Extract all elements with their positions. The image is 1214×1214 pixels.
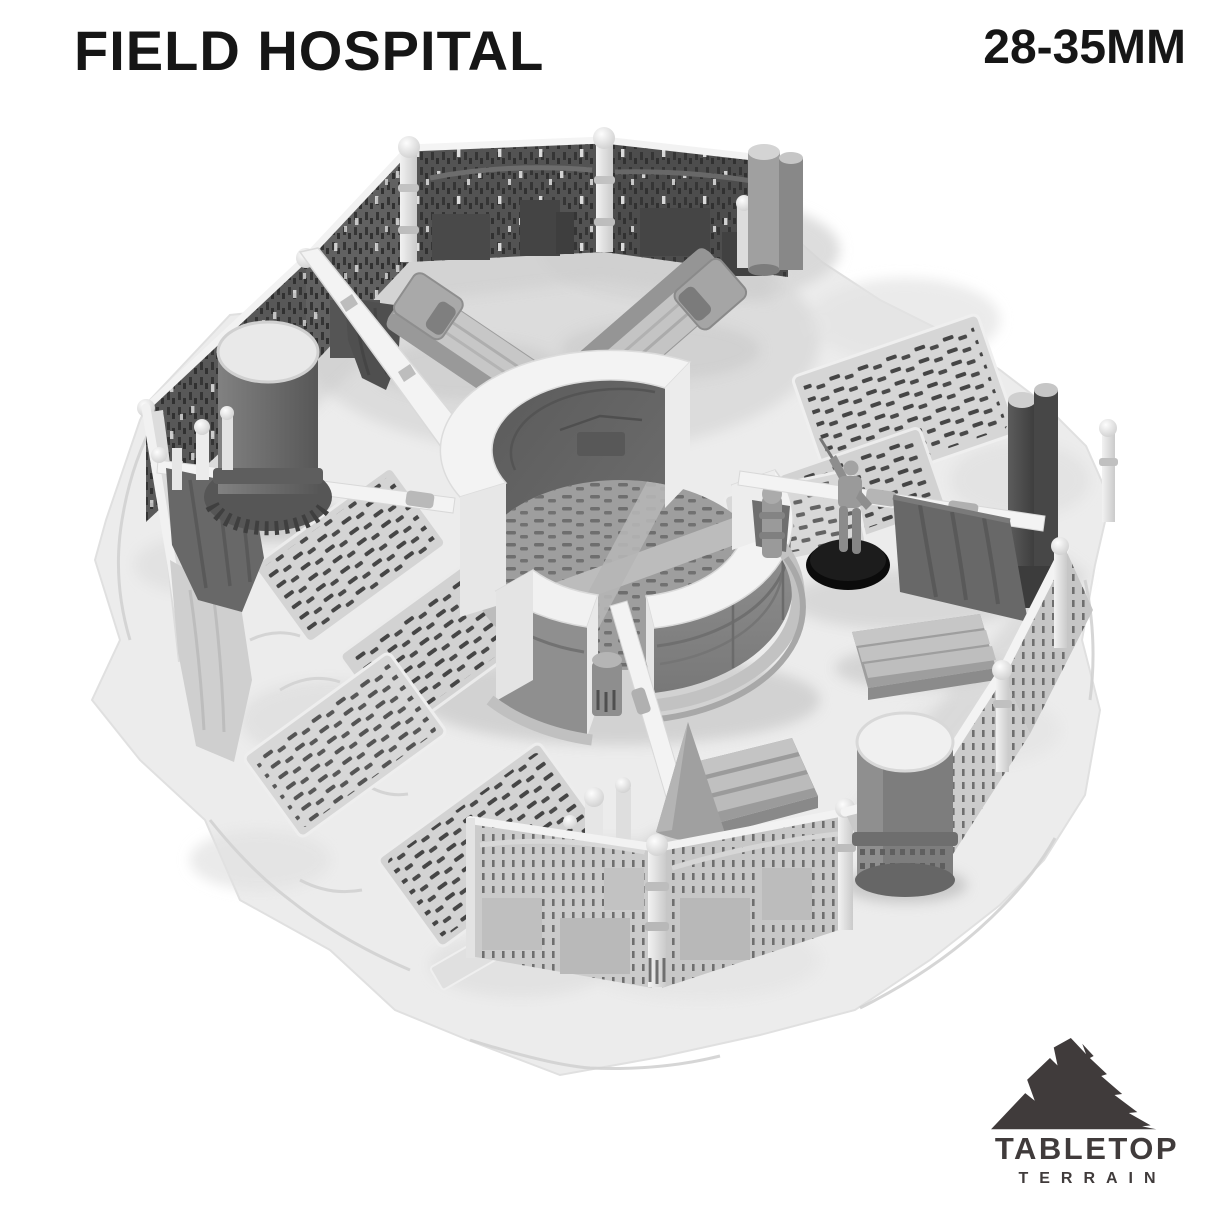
- wall-post: [593, 127, 615, 252]
- mountain-icon: [987, 1038, 1187, 1133]
- wall-segment: [409, 140, 604, 262]
- brand-subtitle: TERRAIN: [972, 1170, 1202, 1188]
- wall-post: [645, 834, 669, 987]
- wall-post: [398, 136, 420, 262]
- ribbed-foot: [592, 652, 622, 716]
- product-render: [0, 0, 1214, 1214]
- brand-name: TABLETOP: [972, 1133, 1202, 1166]
- supply-tank: [852, 713, 958, 897]
- product-image: FIELD HOSPITAL 28-35MM: [0, 0, 1214, 1214]
- brand-logo: TABLETOP TERRAIN: [972, 1038, 1202, 1188]
